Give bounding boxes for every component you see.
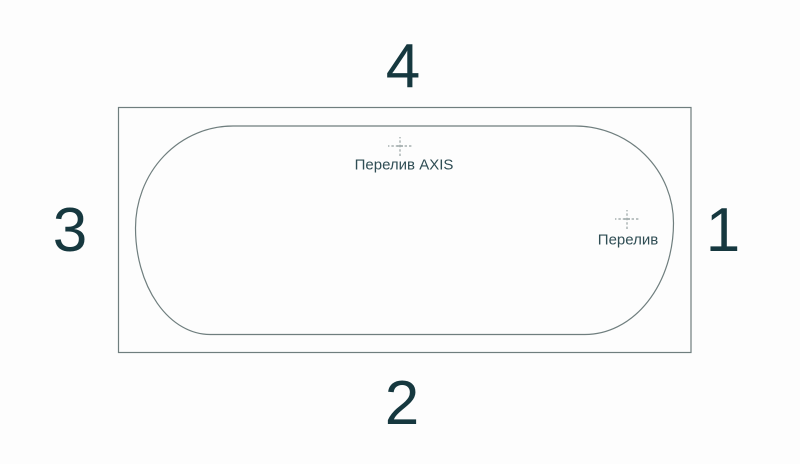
side-label-top: 4 xyxy=(386,36,420,98)
diagram-canvas: 4 2 3 1 Перелив AXIS Перелив xyxy=(0,0,800,464)
tub-outer-rect xyxy=(119,108,692,353)
side-label-right: 1 xyxy=(706,200,740,262)
side-label-left: 3 xyxy=(53,200,87,262)
side-label-bottom: 2 xyxy=(385,373,419,435)
center-mark-axis-icon xyxy=(388,137,412,156)
overflow-axis-label: Перелив AXIS xyxy=(355,158,454,173)
center-mark-overflow-icon xyxy=(615,210,639,229)
overflow-label: Перелив xyxy=(598,233,658,248)
